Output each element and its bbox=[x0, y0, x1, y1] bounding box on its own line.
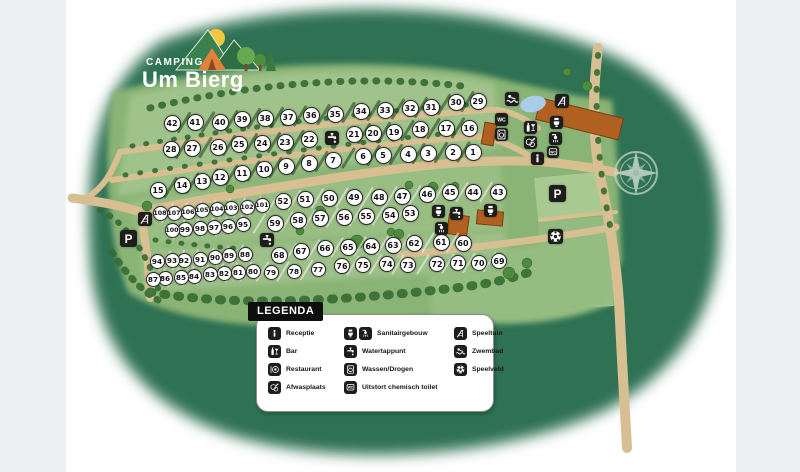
pitch-66: 66 bbox=[317, 240, 334, 257]
pitch-27: 27 bbox=[184, 140, 201, 157]
pitch-31: 31 bbox=[423, 99, 440, 116]
map-icon-bar bbox=[524, 121, 537, 134]
pitch-94: 94 bbox=[150, 254, 165, 269]
pitch-98: 98 bbox=[193, 221, 208, 236]
map-icon-chemisch bbox=[547, 146, 559, 158]
pitch-49: 49 bbox=[346, 189, 363, 206]
pitch-107: 107 bbox=[167, 206, 182, 221]
pitch-77: 77 bbox=[311, 262, 326, 277]
pitch-19: 19 bbox=[386, 124, 403, 141]
restaurant-icon bbox=[268, 363, 281, 376]
legend-item: Speelveld bbox=[454, 360, 520, 378]
pitch-28: 28 bbox=[163, 141, 180, 158]
watertappunt-icon bbox=[344, 345, 357, 358]
pitch-32: 32 bbox=[402, 100, 419, 117]
pitch-70: 70 bbox=[471, 255, 487, 271]
map-icon-toilet bbox=[432, 205, 445, 218]
bar-icon bbox=[268, 345, 281, 358]
pitch-73: 73 bbox=[400, 257, 416, 273]
pitch-95: 95 bbox=[236, 217, 251, 232]
pitch-80: 80 bbox=[246, 264, 261, 279]
pitch-6: 6 bbox=[355, 148, 372, 165]
speelveld-icon bbox=[454, 363, 467, 376]
pitch-47: 47 bbox=[394, 188, 411, 205]
map-icon-toilet bbox=[550, 116, 563, 129]
pitch-74: 74 bbox=[379, 256, 395, 272]
pitch-60: 60 bbox=[455, 235, 472, 252]
legend-item-icons bbox=[344, 345, 357, 358]
logo-name-text: Um Bierg bbox=[142, 67, 244, 93]
legend-item: Bar bbox=[268, 342, 340, 360]
pitch-71: 71 bbox=[450, 255, 466, 271]
legend-column-2: SanitairgebouwWatertappuntWassen/DrogenU… bbox=[344, 324, 454, 396]
pitch-53: 53 bbox=[402, 205, 419, 222]
map-icon-wc bbox=[495, 113, 508, 126]
pitch-29: 29 bbox=[470, 93, 487, 110]
legend-item: Uitstort chemisch toilet bbox=[344, 378, 454, 396]
pitch-83: 83 bbox=[203, 267, 218, 282]
map-icon-watertappunt bbox=[325, 131, 339, 145]
pitch-57: 57 bbox=[312, 210, 329, 227]
wassen-icon bbox=[344, 363, 357, 376]
legend-item-icons bbox=[268, 345, 281, 358]
pitch-89: 89 bbox=[222, 248, 237, 263]
pitch-67: 67 bbox=[293, 243, 310, 260]
pitch-46: 46 bbox=[419, 186, 436, 203]
pitch-5: 5 bbox=[375, 147, 392, 164]
pitch-2: 2 bbox=[445, 144, 462, 161]
pitch-76: 76 bbox=[334, 258, 350, 274]
pitch-11: 11 bbox=[234, 165, 251, 182]
pitch-37: 37 bbox=[280, 109, 297, 126]
pitch-52: 52 bbox=[275, 193, 292, 210]
legend-item-icons bbox=[454, 327, 467, 340]
map-icon-watertappunt bbox=[450, 207, 463, 220]
pitch-15: 15 bbox=[150, 182, 167, 199]
legend-item-icons bbox=[268, 381, 281, 394]
pitch-43: 43 bbox=[490, 184, 507, 201]
pitch-13: 13 bbox=[194, 173, 211, 190]
legend-item-label: Bar bbox=[286, 348, 297, 355]
legend-item: Wassen/Drogen bbox=[344, 360, 454, 378]
pitch-85: 85 bbox=[174, 270, 189, 285]
pitch-78: 78 bbox=[287, 264, 302, 279]
legend-item-icons bbox=[344, 363, 357, 376]
pitch-103: 103 bbox=[224, 201, 239, 216]
pitch-38: 38 bbox=[257, 110, 274, 127]
pitch-106: 106 bbox=[181, 205, 196, 220]
map-icon-speeltuin bbox=[555, 94, 569, 108]
pitch-90: 90 bbox=[208, 250, 223, 265]
legend-item-label: Speeltuin bbox=[472, 330, 503, 337]
legend-item: Watertappunt bbox=[344, 342, 454, 360]
pitch-14: 14 bbox=[174, 177, 191, 194]
pitch-102: 102 bbox=[240, 200, 255, 215]
pitch-82: 82 bbox=[217, 266, 232, 281]
pitch-51: 51 bbox=[297, 191, 314, 208]
pitch-45: 45 bbox=[442, 184, 459, 201]
map-icon-parking bbox=[120, 230, 137, 247]
map-icon-wassen bbox=[495, 128, 508, 141]
pitch-7: 7 bbox=[325, 152, 342, 169]
pitch-93: 93 bbox=[165, 253, 180, 268]
pitch-55: 55 bbox=[358, 208, 375, 225]
pitch-42: 42 bbox=[164, 115, 181, 132]
pitch-22: 22 bbox=[301, 131, 318, 148]
legend-item-label: Receptie bbox=[286, 330, 314, 337]
legend-item-icons bbox=[454, 363, 467, 376]
speeltuin-icon bbox=[454, 327, 467, 340]
pitch-108: 108 bbox=[153, 206, 168, 221]
legend-item-label: Sanitairgebouw bbox=[377, 330, 428, 337]
pitch-62: 62 bbox=[406, 235, 423, 252]
pitch-79: 79 bbox=[264, 265, 279, 280]
pitch-99: 99 bbox=[178, 222, 193, 237]
legend-column-1: ReceptieBarRestaurantAfwasplaats bbox=[268, 324, 340, 396]
pitch-9: 9 bbox=[278, 158, 295, 175]
receptie-icon bbox=[268, 327, 281, 340]
pitch-16: 16 bbox=[461, 120, 478, 137]
legend-item: Speeltuin bbox=[454, 324, 520, 342]
pitch-3: 3 bbox=[420, 145, 437, 162]
pitch-35: 35 bbox=[327, 106, 344, 123]
afwasplaats-icon bbox=[268, 381, 281, 394]
map-icon-speeltuin bbox=[138, 212, 152, 226]
pitch-54: 54 bbox=[382, 207, 399, 224]
legend-item-icons bbox=[454, 345, 467, 358]
pitch-68: 68 bbox=[271, 247, 288, 264]
legend-column-3: SpeeltuinZwembadSpeelveld bbox=[454, 324, 520, 378]
pitch-56: 56 bbox=[336, 209, 353, 226]
pitch-41: 41 bbox=[187, 114, 204, 131]
legend-item: Restaurant bbox=[268, 360, 340, 378]
legend-item-label: Zwembad bbox=[472, 348, 503, 355]
legend-item-label: Wassen/Drogen bbox=[362, 366, 413, 373]
pitch-39: 39 bbox=[234, 111, 251, 128]
zwembad-icon bbox=[454, 345, 467, 358]
pitch-96: 96 bbox=[221, 219, 236, 234]
pitch-21: 21 bbox=[346, 126, 363, 143]
map-icon-speelveld bbox=[548, 229, 563, 244]
legend-item-icons bbox=[344, 381, 357, 394]
chemisch-icon bbox=[344, 381, 357, 394]
pitch-75: 75 bbox=[355, 257, 371, 273]
map-icon-zwembad bbox=[505, 92, 519, 106]
pitch-18: 18 bbox=[412, 121, 429, 138]
legend-title: LEGENDA bbox=[248, 302, 323, 321]
pitch-1: 1 bbox=[465, 144, 482, 161]
pitch-33: 33 bbox=[377, 102, 394, 119]
pitch-48: 48 bbox=[371, 189, 388, 206]
pitch-58: 58 bbox=[290, 212, 307, 229]
legend-item: Zwembad bbox=[454, 342, 520, 360]
legend-item: Afwasplaats bbox=[268, 378, 340, 396]
toilet-icon bbox=[344, 327, 357, 340]
pitch-34: 34 bbox=[353, 103, 370, 120]
pitch-88: 88 bbox=[238, 247, 253, 262]
map-icon-watertappunt bbox=[260, 233, 274, 247]
pitch-4: 4 bbox=[400, 146, 417, 163]
pitch-105: 105 bbox=[195, 203, 210, 218]
pitch-72: 72 bbox=[429, 256, 445, 272]
pitch-63: 63 bbox=[385, 237, 402, 254]
legend-item-icons bbox=[344, 327, 372, 340]
legend-item-icons bbox=[268, 363, 281, 376]
pitch-84: 84 bbox=[187, 269, 202, 284]
pitch-59: 59 bbox=[267, 215, 284, 232]
camping-logo: CAMPING Um Bierg bbox=[136, 28, 286, 98]
pitch-44: 44 bbox=[465, 184, 482, 201]
pitch-40: 40 bbox=[212, 114, 229, 131]
pitch-64: 64 bbox=[363, 238, 380, 255]
pitch-100: 100 bbox=[165, 223, 180, 238]
pitch-8: 8 bbox=[301, 155, 318, 172]
legend-item-label: Watertappunt bbox=[362, 348, 406, 355]
pitch-87: 87 bbox=[146, 272, 161, 287]
pitch-12: 12 bbox=[212, 169, 229, 186]
map-icon-afwasplaats bbox=[524, 136, 537, 149]
map-icon-shower bbox=[435, 222, 448, 235]
pitch-69: 69 bbox=[491, 253, 507, 269]
pitch-10: 10 bbox=[256, 161, 273, 178]
pitch-17: 17 bbox=[438, 120, 455, 137]
pitch-65: 65 bbox=[340, 239, 357, 256]
pitch-97: 97 bbox=[207, 220, 222, 235]
map-icon-receptie bbox=[531, 152, 544, 165]
pitch-50: 50 bbox=[321, 190, 338, 207]
map-icon-toilet bbox=[484, 204, 497, 217]
legend-item: Sanitairgebouw bbox=[344, 324, 454, 342]
pitch-104: 104 bbox=[210, 202, 225, 217]
pitch-30: 30 bbox=[448, 94, 465, 111]
legend-item-label: Speelveld bbox=[472, 366, 504, 373]
map-icon-shower bbox=[549, 132, 562, 145]
pitch-23: 23 bbox=[277, 134, 294, 151]
shower-icon bbox=[359, 327, 372, 340]
legend-item-label: Restaurant bbox=[286, 366, 322, 373]
legend-item: Receptie bbox=[268, 324, 340, 342]
pitch-81: 81 bbox=[231, 265, 246, 280]
pitch-25: 25 bbox=[231, 136, 248, 153]
pitch-24: 24 bbox=[254, 135, 271, 152]
legend-item-label: Afwasplaats bbox=[286, 384, 326, 391]
pitch-36: 36 bbox=[303, 107, 320, 124]
legend-item-icons bbox=[268, 327, 281, 340]
map-icon-parking bbox=[549, 185, 566, 202]
pitch-20: 20 bbox=[365, 125, 382, 142]
legend-item-label: Uitstort chemisch toilet bbox=[362, 384, 438, 391]
pitch-91: 91 bbox=[193, 252, 208, 267]
pitch-61: 61 bbox=[433, 234, 450, 251]
legend: LEGENDA ReceptieBarRestaurantAfwasplaats… bbox=[248, 302, 496, 414]
pitch-26: 26 bbox=[210, 139, 227, 156]
pitch-101: 101 bbox=[255, 198, 270, 213]
